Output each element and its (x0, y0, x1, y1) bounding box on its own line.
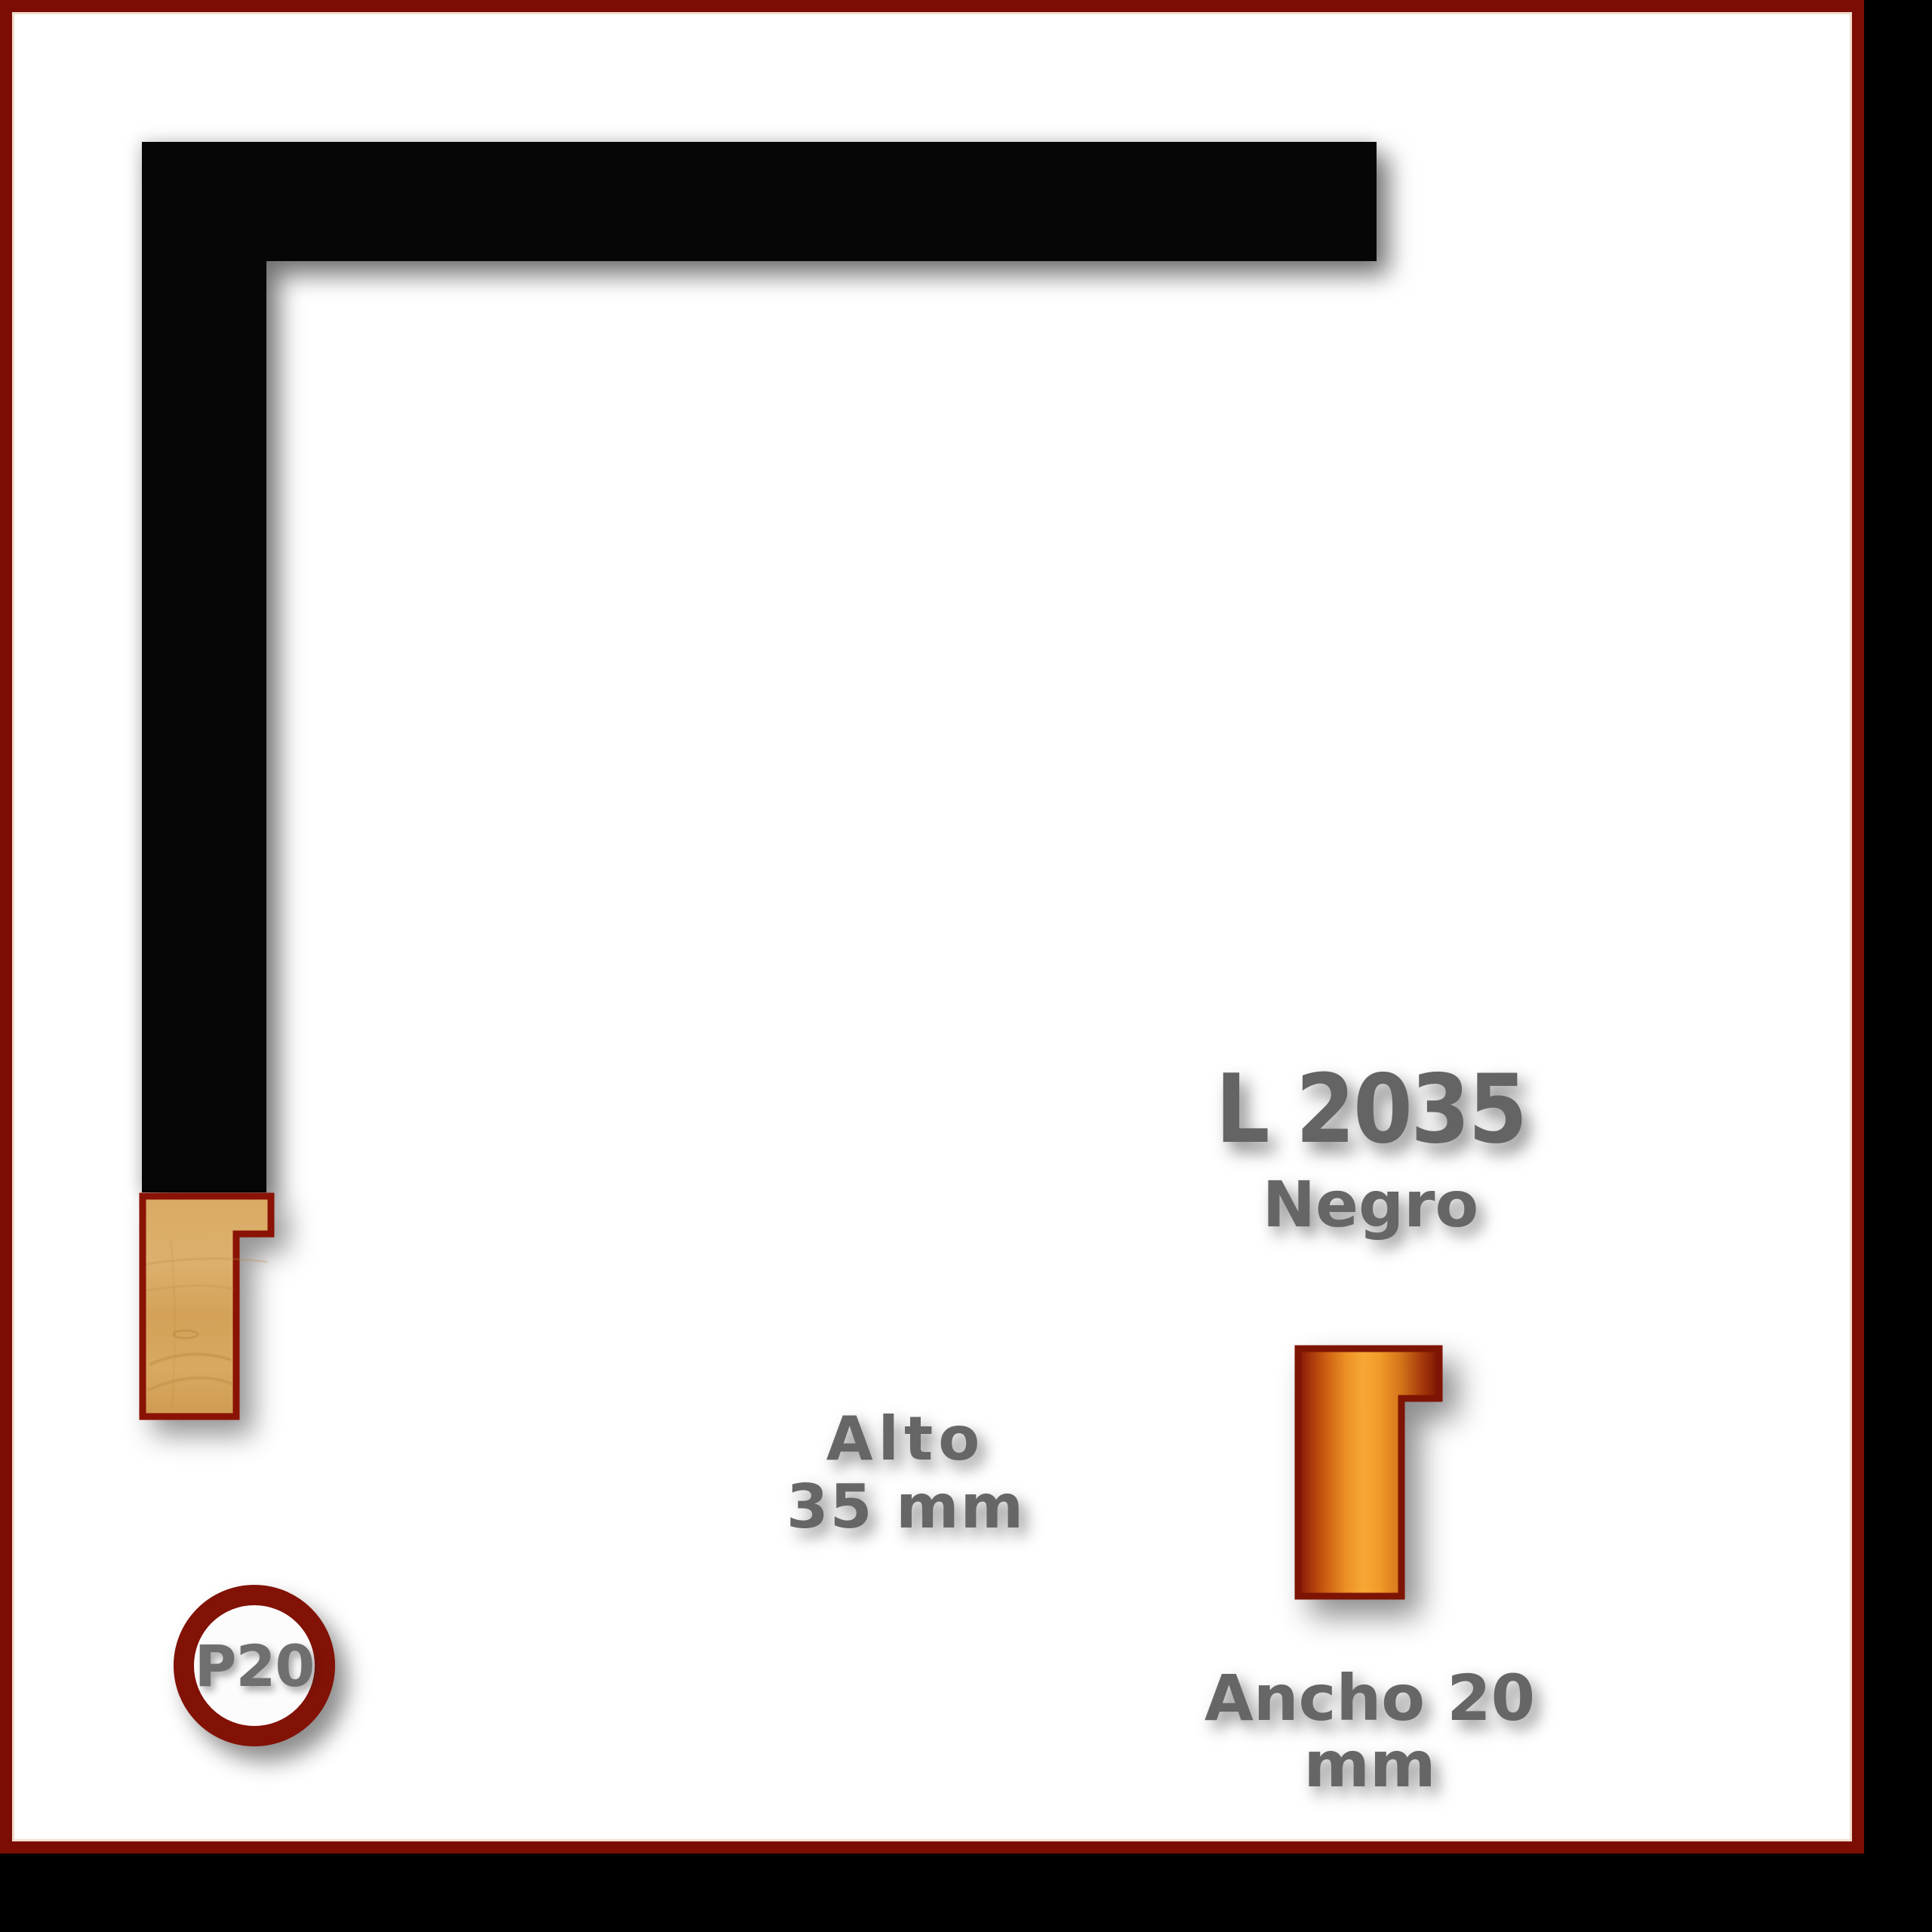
orange-profile-shape (1298, 1349, 1439, 1596)
bordered-card (0, 0, 1864, 1854)
width-label: Ancho 20 mm (1143, 1665, 1596, 1798)
height-label: Alto (717, 1405, 1094, 1473)
badge-text: P20 (195, 1632, 314, 1700)
profile-dimension-icon (1294, 1345, 1443, 1600)
p20-badge: P20 (174, 1585, 335, 1746)
finish-name: Negro (1144, 1171, 1597, 1238)
moulding-catalog-image: L 2035 Negro Alto 35 mm Ancho 20 mm P20 (0, 0, 1932, 1932)
height-dimension: Alto 35 mm (717, 1405, 1094, 1540)
moulding-cross-section-graphic (139, 1192, 275, 1420)
height-value: 35 mm (717, 1473, 1094, 1541)
product-code: L 2035 (1150, 1060, 1592, 1159)
